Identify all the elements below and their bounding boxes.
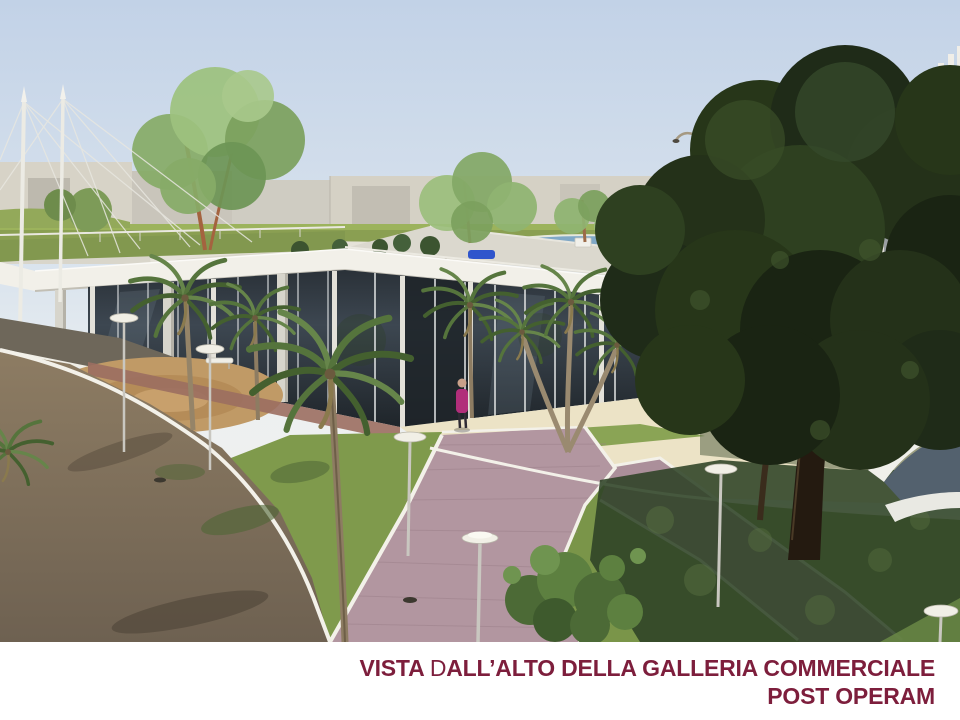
caption-line1-part3: ALL’ALTO DELLA GALLERIA COMMERCIALE (446, 655, 935, 681)
slide-caption: VISTA DALL’ALTO DELLA GALLERIA COMMERCIA… (359, 654, 935, 710)
presentation-slide: VISTA DALL’ALTO DELLA GALLERIA COMMERCIA… (0, 0, 960, 720)
pedestrian-head (458, 379, 467, 388)
caption-line-1: VISTA DALL’ALTO DELLA GALLERIA COMMERCIA… (359, 654, 935, 682)
pedestrian-torso (456, 389, 468, 413)
render-scene (0, 0, 960, 642)
caption-line1-part1: VISTA (359, 655, 429, 681)
caption-line-2: POST OPERAM (359, 682, 935, 710)
blue-car (468, 250, 495, 259)
caption-line1-part2: D (430, 655, 446, 681)
architectural-render (0, 0, 960, 642)
